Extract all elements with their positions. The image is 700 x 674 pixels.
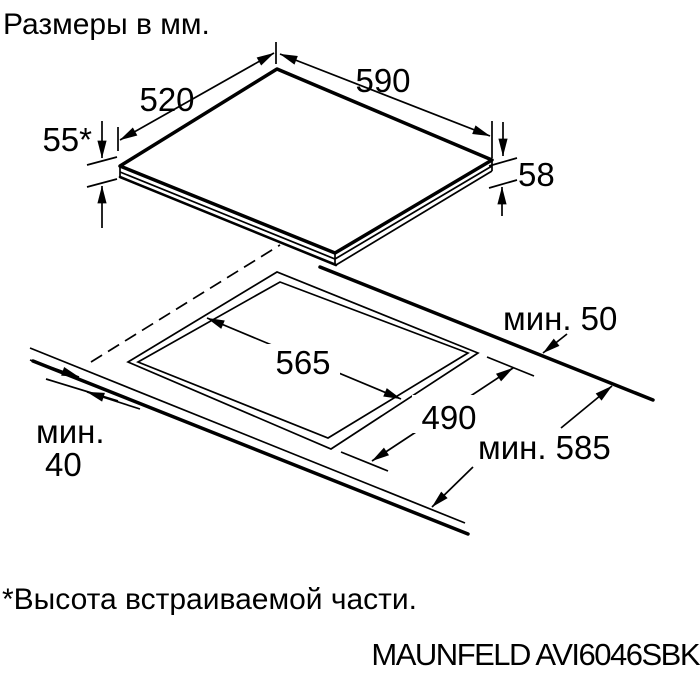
- dimension-drawing-page: Размеры в мм. 565 490: [0, 0, 700, 674]
- front-clearance-label-line1: мин.: [36, 413, 105, 450]
- model-name: MAUNFELD AVI6046SBK: [371, 637, 700, 672]
- cutout-depth-label: 490: [421, 399, 476, 436]
- front-clearance-arrow-outer: [30, 360, 79, 377]
- worktop-cutout-view: 565 490 мин. 50 мин. 585 мин. 40: [30, 245, 653, 534]
- hidden-edge-dashed-line: [91, 245, 280, 362]
- cutout-extension-line-right: [487, 357, 534, 376]
- built-in-height-tick-top: [87, 157, 117, 165]
- hob-dimension-diagram: Размеры в мм. 565 490: [0, 0, 700, 674]
- built-in-height-label: 55*: [42, 121, 92, 158]
- front-clearance-label-line2: 40: [45, 446, 82, 483]
- worktop-depth-arrow-front: [432, 467, 473, 507]
- built-in-height-tick-bottom: [87, 179, 117, 187]
- worktop-depth-label: мин. 585: [478, 429, 611, 466]
- worktop-depth-arrow-rear: [561, 386, 612, 428]
- cutout-width-label: 565: [275, 344, 330, 381]
- hob-depth-label: 520: [139, 81, 194, 118]
- overall-height-tick-bottom: [489, 180, 517, 188]
- hob-width-label: 590: [355, 62, 410, 99]
- footnote: *Высота встраиваемой части.: [2, 583, 417, 616]
- rear-clearance-label: мин. 50: [503, 300, 617, 337]
- hob-top-view: 520 590 55* 58: [42, 42, 554, 265]
- page-title: Размеры в мм.: [3, 8, 210, 41]
- overall-height-label: 58: [518, 156, 555, 193]
